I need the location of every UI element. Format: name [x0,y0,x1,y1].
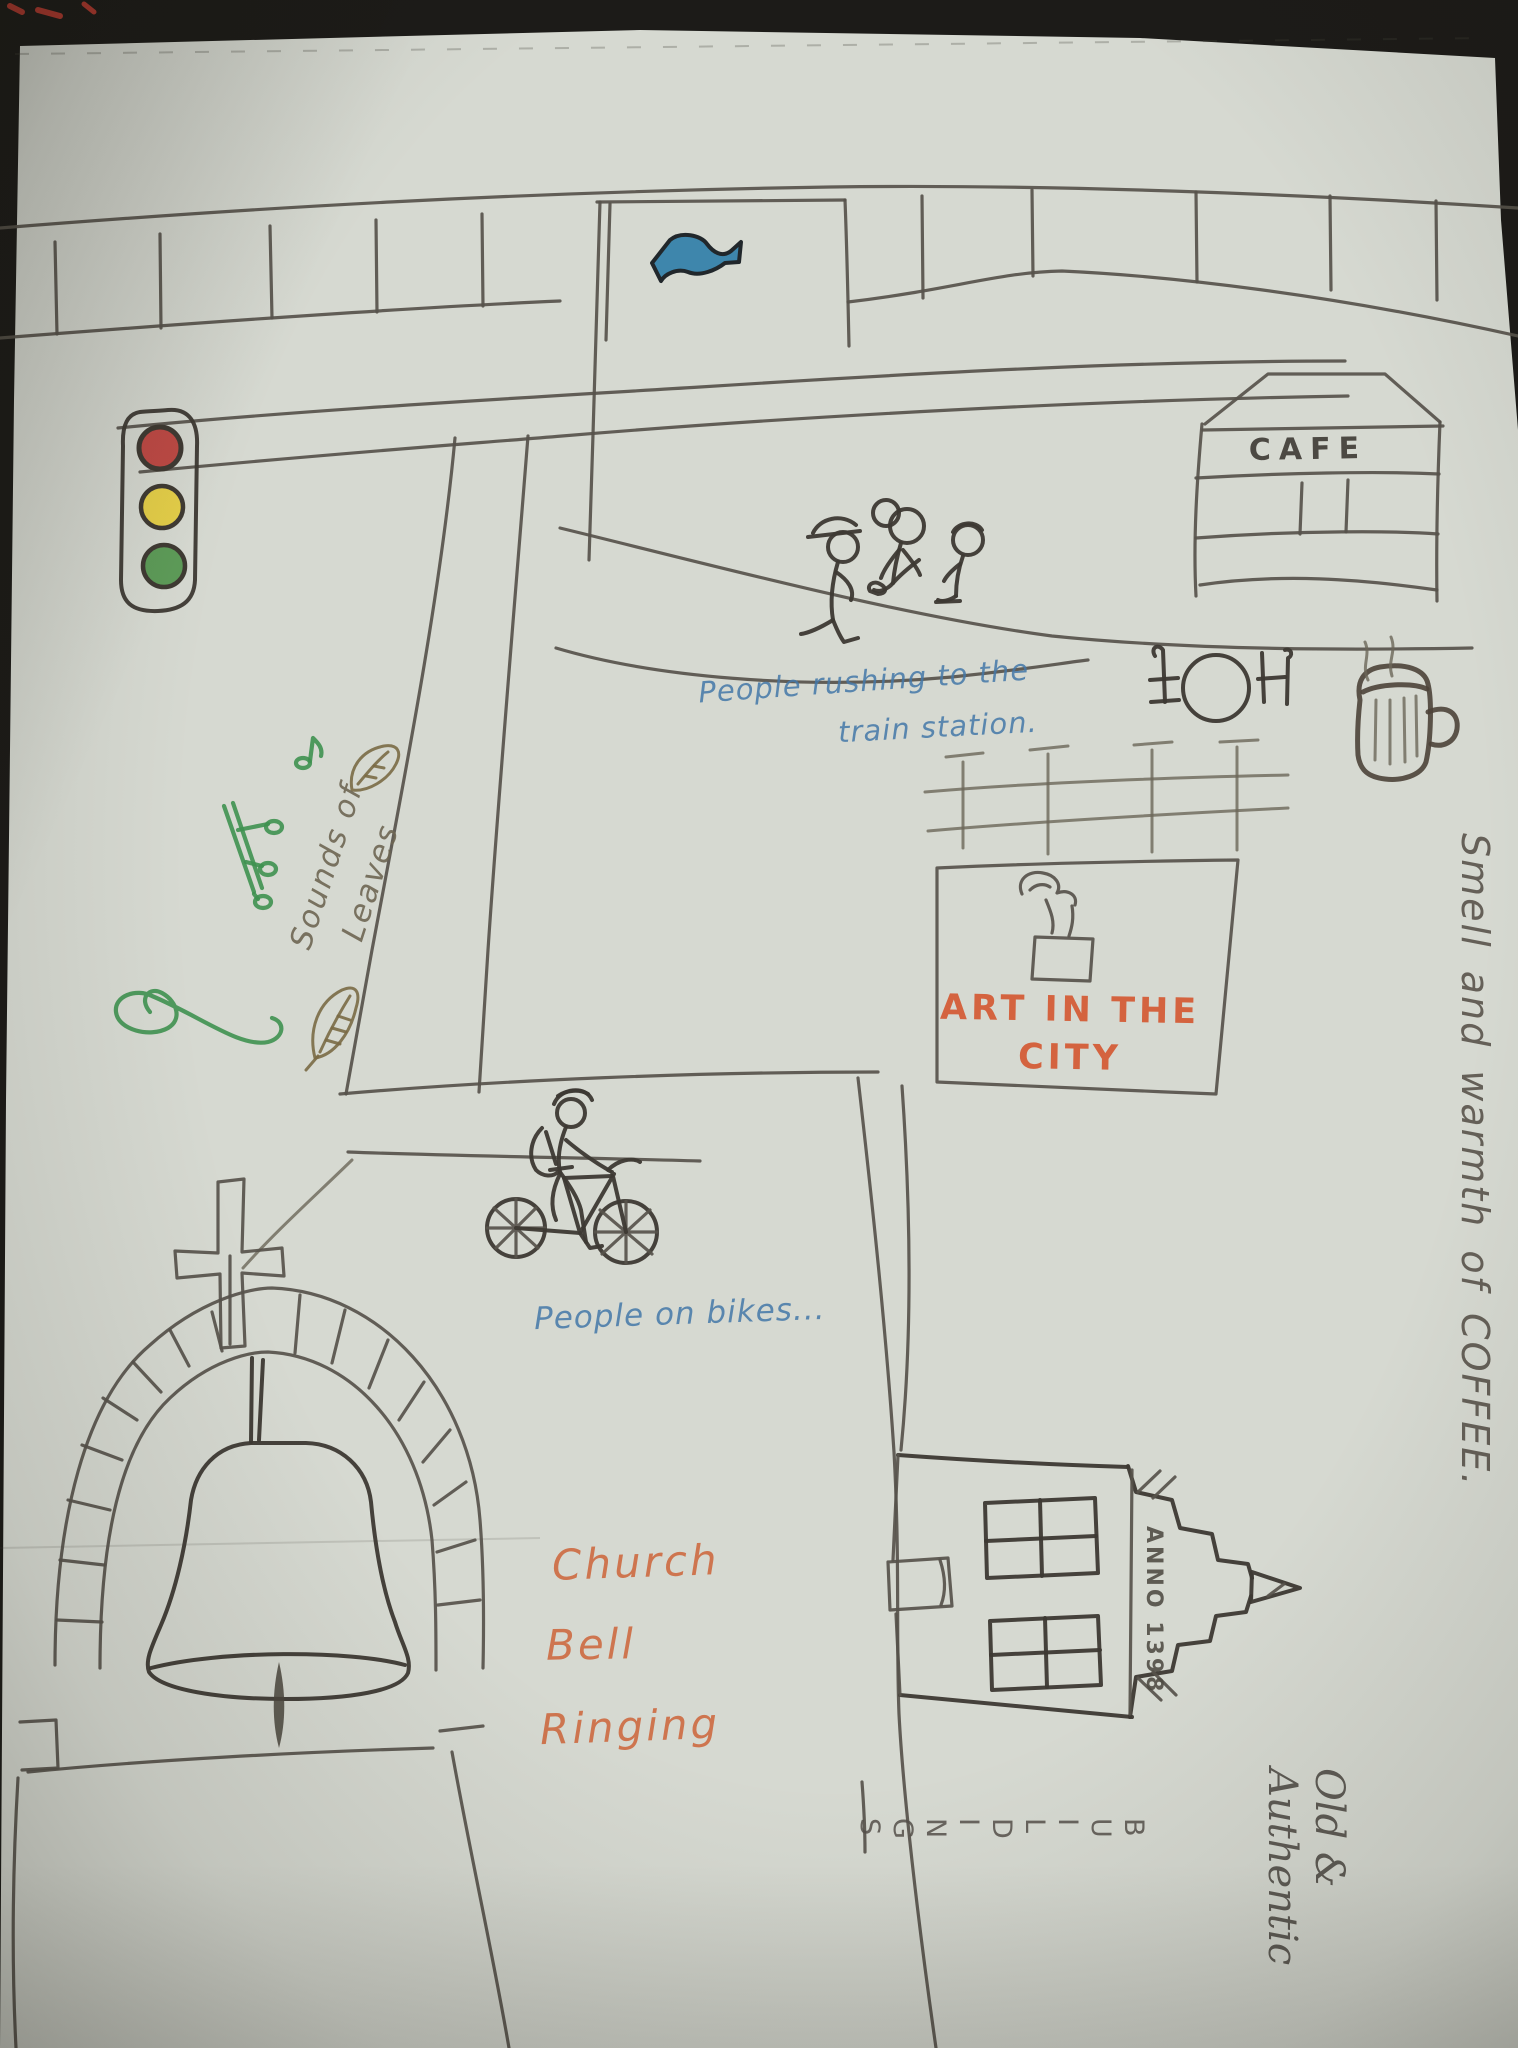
art-billboard-line2: CITY [940,1036,1201,1081]
coffee-note-text: Smell and warmth of COFFEE. [1453,833,1497,1487]
old-authentic-line2: Authentic [1258,1768,1305,1965]
sketch-drawing [0,0,1518,2048]
red-marks [10,4,94,16]
church-note-line1: Church [551,1535,720,1590]
cafe-sign-text: CAFE [1243,431,1374,468]
old-authentic-line1: Old & [1305,1768,1352,1965]
buildings-vertical-text: B U I L D I N G S [853,1818,1150,1839]
house-anno-text: ANNO 1398 [1141,1526,1166,1694]
church-note-line3: Ringing [539,1699,721,1754]
paper-sheet [0,30,1518,2048]
photographed-sketch: CAFE People rushing to the train station… [0,0,1518,2048]
church-note-line2: Bell [546,1619,637,1670]
old-authentic-text: Old & Authentic [1258,1768,1352,1965]
art-billboard-line1: ART IN THE [940,988,1201,1033]
